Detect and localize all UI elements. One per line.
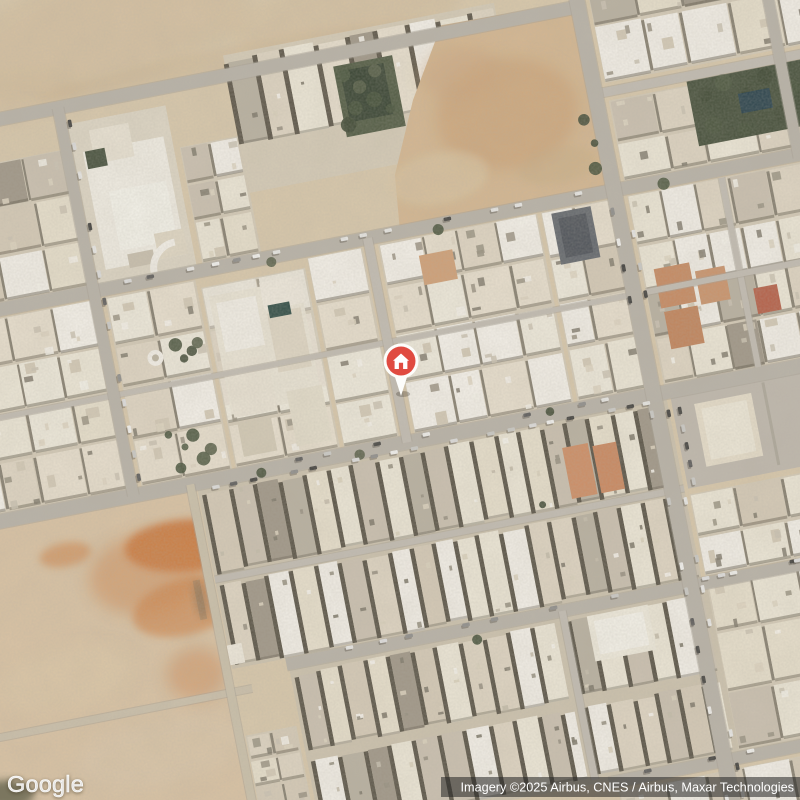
svg-text:Google: Google	[7, 771, 84, 797]
svg-text:Imagery ©2025 Airbus, CNES / A: Imagery ©2025 Airbus, CNES / Airbus, Max…	[460, 781, 794, 795]
